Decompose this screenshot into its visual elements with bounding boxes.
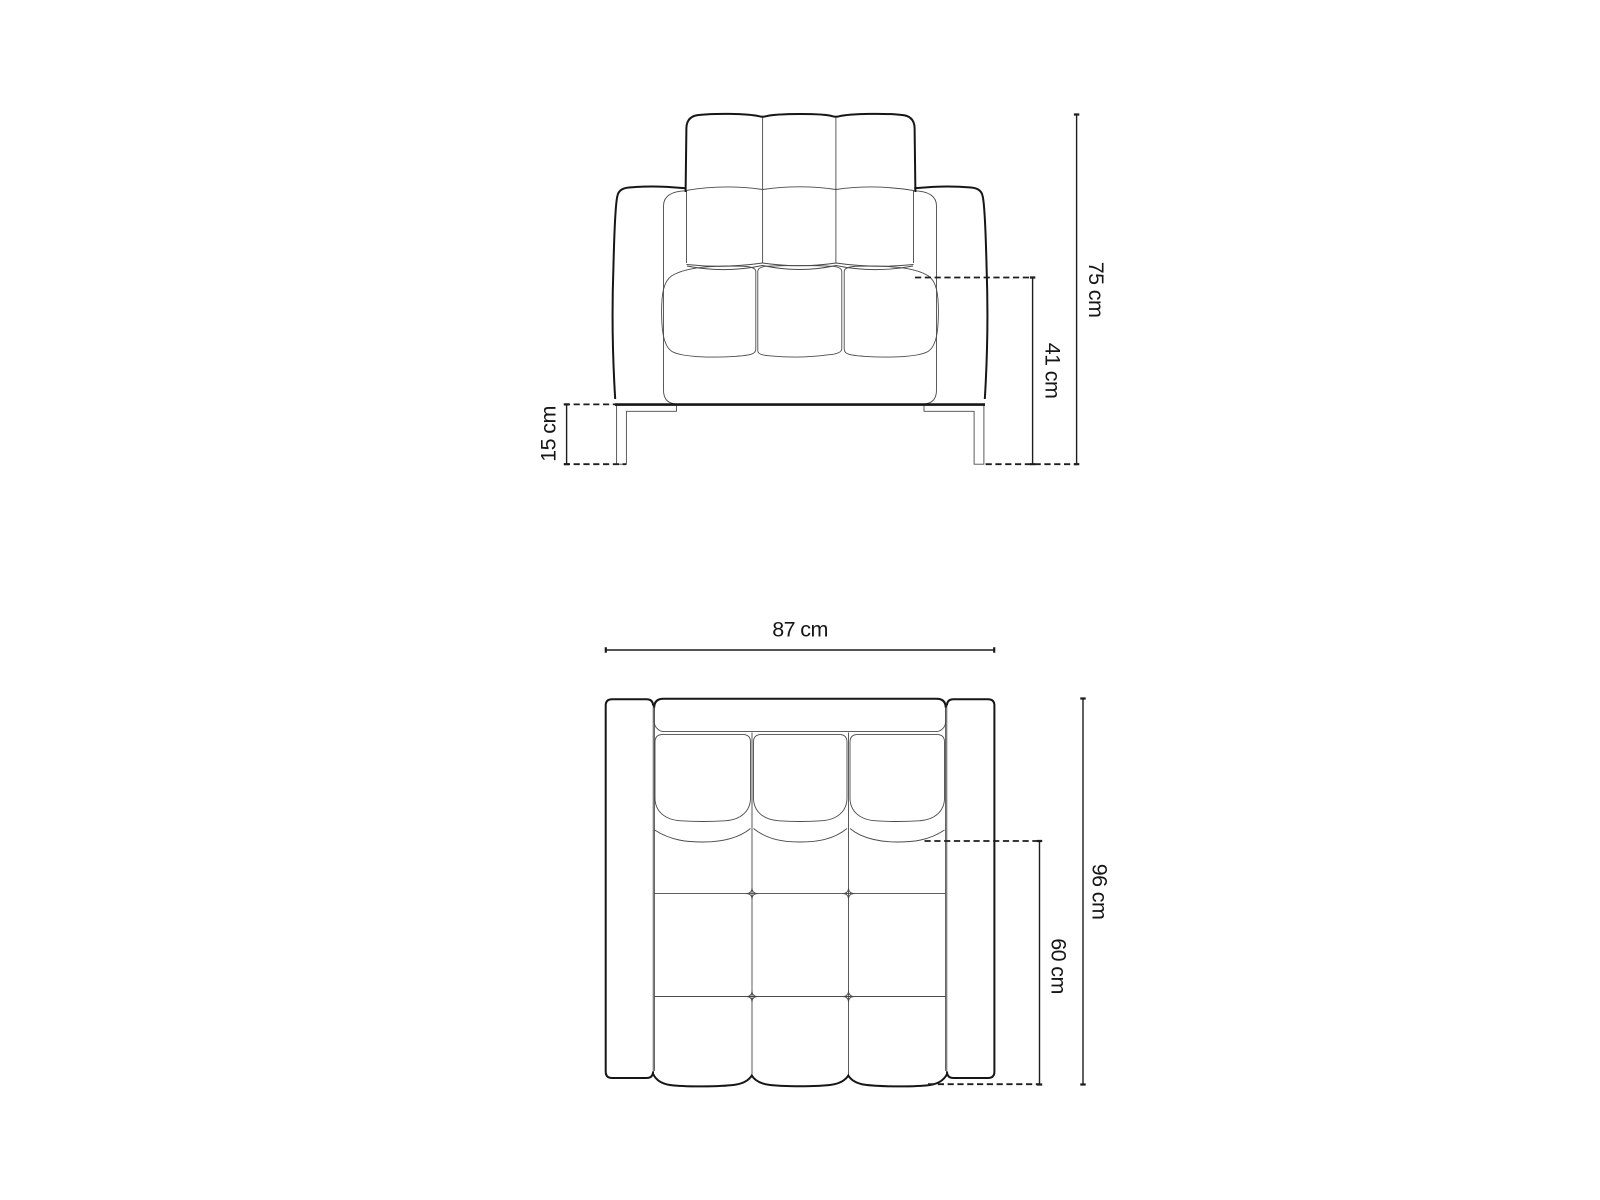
- svg-text:87 cm: 87 cm: [772, 617, 828, 641]
- svg-text:41 cm: 41 cm: [1041, 343, 1065, 399]
- svg-text:75 cm: 75 cm: [1084, 262, 1108, 318]
- svg-text:60 cm: 60 cm: [1047, 938, 1071, 994]
- svg-text:15 cm: 15 cm: [536, 406, 560, 462]
- svg-text:96 cm: 96 cm: [1088, 864, 1112, 920]
